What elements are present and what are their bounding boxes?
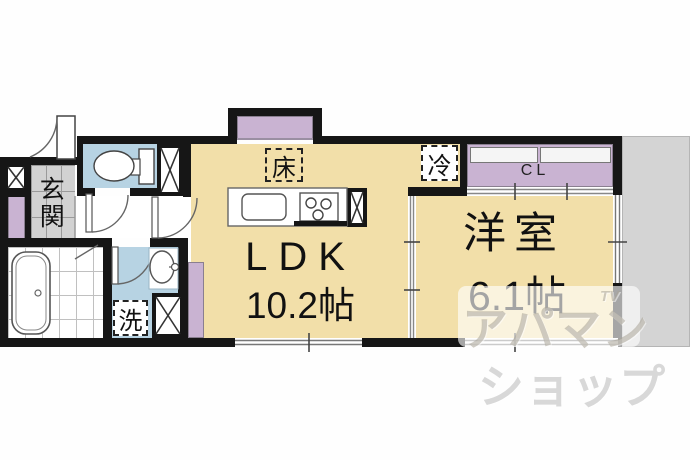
entrance-door-leaf xyxy=(57,116,75,159)
wall-closet-west xyxy=(460,144,467,187)
ldk-size: 10.2帖 xyxy=(208,287,393,326)
floorplan-canvas: 床 冷 洗 LDK 10.2帖 洋室 6.1帖 玄関 CL TV アパマン ショ… xyxy=(0,0,690,460)
wall-fridge-nook-bottom xyxy=(408,187,467,196)
ldk-floor-top xyxy=(191,144,460,188)
wall-corridor-bottom-a xyxy=(0,238,112,247)
entrance-door-arc xyxy=(30,118,57,157)
wall-ldk-west xyxy=(183,136,191,197)
wall-bathroom-east xyxy=(103,247,112,338)
closet-shelf-left xyxy=(470,147,538,163)
wall-bay-right xyxy=(313,108,322,144)
closet-shelf-right xyxy=(540,147,611,163)
pillar-kitchen-core xyxy=(351,192,363,223)
watermark-line2: ショップ xyxy=(478,351,666,417)
wall-bay-top xyxy=(228,108,322,116)
refrigerator-label: 冷 xyxy=(428,146,452,181)
alcove-label-box: 床 xyxy=(265,148,303,182)
wall-bottom-west xyxy=(0,338,235,347)
watermark-line1: アパマン xyxy=(462,293,649,359)
wall-top-right xyxy=(322,136,622,144)
corridor-floor xyxy=(83,196,191,238)
wall-toilet-bottom-a xyxy=(83,188,95,196)
pipe-space-left-fill xyxy=(8,196,25,239)
ldk-name: LDK xyxy=(213,236,388,278)
wall-toilet-left xyxy=(77,136,83,196)
shaft-washroom-core xyxy=(156,297,180,334)
wall-bottom-center xyxy=(362,338,465,347)
pillar-toilet-core xyxy=(161,148,179,192)
refrigerator-label-box: 冷 xyxy=(421,145,458,181)
washer-label-box: 洗 xyxy=(113,300,148,336)
entrance-label: 玄関 xyxy=(37,171,63,235)
ldk-door-gap xyxy=(183,197,191,237)
counter-strip-fill xyxy=(188,262,204,338)
closet-label: CL xyxy=(505,163,565,180)
toilet-room-floor xyxy=(83,144,157,188)
wall-top-left xyxy=(77,136,228,144)
wall-right-upper xyxy=(613,144,622,195)
alcove-label: 床 xyxy=(272,148,296,183)
shaft-topleft-core xyxy=(8,167,24,188)
washer-label: 洗 xyxy=(119,301,143,336)
bay-alcove-fill xyxy=(237,116,313,139)
bathroom-floor xyxy=(8,247,103,338)
wall-pipe-separator xyxy=(0,190,31,197)
western-room-name: 洋室 xyxy=(428,212,600,257)
